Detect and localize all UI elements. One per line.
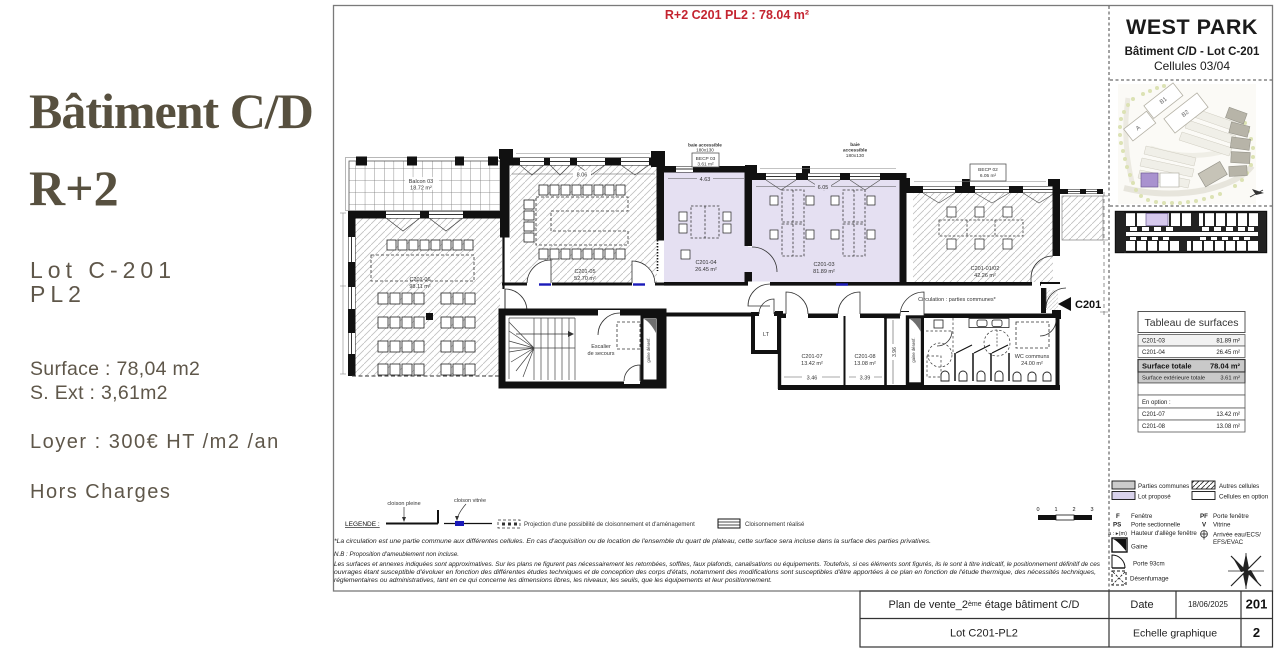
svg-text:Porte fenêtre: Porte fenêtre bbox=[1213, 513, 1249, 520]
svg-text:C201-04: C201-04 bbox=[695, 260, 716, 266]
svg-text:81.89 m²: 81.89 m² bbox=[813, 269, 835, 275]
svg-text:2: 2 bbox=[1253, 625, 1260, 640]
svg-text:F: F bbox=[1116, 513, 1120, 520]
svg-text:WC communs: WC communs bbox=[1015, 354, 1050, 360]
svg-text:accessible: accessible bbox=[843, 148, 868, 154]
svg-text:PF: PF bbox=[1200, 513, 1208, 520]
svg-text:C201-07: C201-07 bbox=[1142, 412, 1166, 418]
svg-text:13.08 m²: 13.08 m² bbox=[1216, 424, 1240, 430]
svg-text:Lot C201-PL2: Lot C201-PL2 bbox=[950, 628, 1018, 640]
svg-text:Cellules 03/04: Cellules 03/04 bbox=[1154, 59, 1230, 73]
svg-text:18.72 m²: 18.72 m² bbox=[410, 186, 432, 192]
svg-text:N.B : Proposition d'ameublemen: N.B : Proposition d'ameublement non incl… bbox=[334, 551, 459, 558]
svg-text:gaine désenf.: gaine désenf. bbox=[911, 337, 916, 362]
svg-text:180x130: 180x130 bbox=[696, 148, 714, 153]
svg-text:3.61 m²: 3.61 m² bbox=[1220, 376, 1240, 382]
svg-text:13.42 m²: 13.42 m² bbox=[1216, 412, 1240, 418]
svg-text:2: 2 bbox=[1072, 507, 1075, 513]
svg-text:Vitrine: Vitrine bbox=[1213, 522, 1231, 529]
svg-text:6.05 m²: 6.05 m² bbox=[980, 173, 997, 179]
svg-text:Parties communes: Parties communes bbox=[1138, 483, 1189, 490]
svg-text:Fenêtre: Fenêtre bbox=[1131, 513, 1153, 520]
svg-text:26.45 m²: 26.45 m² bbox=[1216, 350, 1240, 356]
svg-text:ouvrages étant susceptible d'é: ouvrages étant susceptible d'évoluer en … bbox=[334, 569, 1096, 576]
svg-text:cloison vitrée: cloison vitrée bbox=[454, 498, 486, 504]
svg-text:V: V bbox=[1202, 522, 1207, 529]
svg-text:BECP 02: BECP 02 bbox=[978, 167, 998, 173]
svg-text:18/06/2025: 18/06/2025 bbox=[1188, 600, 1229, 609]
svg-text:Gaine: Gaine bbox=[1131, 544, 1148, 551]
svg-text:BECP 03: BECP 03 bbox=[696, 156, 716, 162]
svg-text:Porte sectionnelle: Porte sectionnelle bbox=[1131, 522, 1181, 529]
svg-text:C201-06: C201-06 bbox=[409, 277, 430, 283]
svg-text:Porte 93cm: Porte 93cm bbox=[1133, 561, 1165, 568]
svg-text:Hauteur d'allège fenêtre: Hauteur d'allège fenêtre bbox=[1131, 530, 1197, 537]
svg-text:R+2 C201 PL2 : 78.04 m²: R+2 C201 PL2 : 78.04 m² bbox=[665, 8, 809, 22]
svg-text:Cloisonnement réalisé: Cloisonnement réalisé bbox=[745, 522, 805, 528]
svg-text:1: 1 bbox=[1054, 507, 1057, 513]
svg-text:En option :: En option : bbox=[1142, 400, 1171, 406]
svg-text:13.42 m²: 13.42 m² bbox=[801, 361, 823, 367]
svg-text:Date: Date bbox=[1130, 599, 1153, 611]
svg-text:EFS/EVAC: EFS/EVAC bbox=[1213, 539, 1244, 546]
svg-text:PS: PS bbox=[1113, 522, 1121, 529]
svg-text:*La circulation est une partie: *La circulation est une partie commune a… bbox=[334, 538, 931, 545]
svg-text:Autres cellules: Autres cellules bbox=[1219, 483, 1259, 490]
svg-text:6.05: 6.05 bbox=[818, 185, 829, 191]
svg-text:3: 3 bbox=[1090, 507, 1093, 513]
svg-text:8.06: 8.06 bbox=[577, 173, 588, 179]
svg-text:C201-03: C201-03 bbox=[1142, 339, 1166, 345]
svg-text:4.63: 4.63 bbox=[700, 177, 711, 183]
svg-text:98.11 m²: 98.11 m² bbox=[409, 284, 430, 290]
svg-text:C201-04: C201-04 bbox=[1142, 350, 1166, 356]
svg-text:13.08 m²: 13.08 m² bbox=[854, 361, 876, 367]
svg-text:C201-07: C201-07 bbox=[801, 354, 822, 360]
svg-text:201: 201 bbox=[1246, 597, 1268, 612]
svg-text:3.61 m²: 3.61 m² bbox=[697, 162, 714, 168]
svg-text:0: 0 bbox=[1036, 507, 1039, 513]
svg-text:C201: C201 bbox=[1075, 299, 1101, 311]
svg-text:C201-08: C201-08 bbox=[1142, 424, 1166, 430]
svg-text:Les surfaces et annexes indiqu: Les surfaces et annexes indiquées sont a… bbox=[334, 561, 1100, 568]
svg-text:réglementaires ou administrati: réglementaires ou administratives, tant … bbox=[334, 577, 772, 584]
svg-text:Circulation : parties communes: Circulation : parties communes* bbox=[918, 297, 997, 303]
svg-text:78.04 m²: 78.04 m² bbox=[1210, 362, 1241, 371]
svg-text:Tableau de surfaces: Tableau de surfaces bbox=[1145, 317, 1239, 329]
svg-text:81.89 m²: 81.89 m² bbox=[1216, 339, 1240, 345]
svg-text:Lot proposé: Lot proposé bbox=[1138, 494, 1171, 501]
svg-text:LEGENDE :: LEGENDE : bbox=[345, 521, 380, 528]
svg-text:26.45 m²: 26.45 m² bbox=[695, 267, 717, 273]
svg-text:gaine désenf.: gaine désenf. bbox=[646, 337, 651, 362]
svg-text:C201-03: C201-03 bbox=[813, 262, 834, 268]
svg-text:de secours: de secours bbox=[588, 351, 615, 357]
svg-text:Surface totale: Surface totale bbox=[1142, 362, 1192, 371]
svg-text:24.00 m²: 24.00 m² bbox=[1021, 361, 1043, 367]
svg-text:3.39: 3.39 bbox=[860, 376, 871, 382]
svg-text:Désenfumage: Désenfumage bbox=[1130, 576, 1169, 583]
svg-text:Surface extérieure totale: Surface extérieure totale bbox=[1142, 376, 1205, 382]
svg-text:Cellules en option: Cellules en option bbox=[1219, 494, 1269, 501]
svg-text:Echelle graphique: Echelle graphique bbox=[1133, 628, 1217, 640]
svg-text:180x130: 180x130 bbox=[846, 153, 865, 159]
svg-text:52.70 m²: 52.70 m² bbox=[574, 276, 596, 282]
svg-text:cloison pleine: cloison pleine bbox=[387, 501, 420, 507]
svg-text:baie: baie bbox=[850, 142, 860, 148]
svg-text:C201-01/02: C201-01/02 bbox=[971, 266, 1000, 272]
svg-text:42.26 m²: 42.26 m² bbox=[974, 273, 996, 279]
svg-text:Escalier: Escalier bbox=[591, 344, 611, 350]
svg-text:a : ▸(m): a : ▸(m) bbox=[1108, 531, 1127, 537]
svg-text:Bâtiment C/D - Lot C-201: Bâtiment C/D - Lot C-201 bbox=[1125, 46, 1260, 58]
svg-text:LT: LT bbox=[763, 332, 770, 338]
svg-text:3.46: 3.46 bbox=[807, 376, 818, 382]
svg-text:WEST PARK: WEST PARK bbox=[1126, 15, 1258, 39]
svg-text:Balcon 03: Balcon 03 bbox=[409, 179, 433, 185]
svg-text:Arrivée eau/ECS/: Arrivée eau/ECS/ bbox=[1213, 532, 1261, 539]
svg-text:Projection d'une possibilité d: Projection d'une possibilité de cloisonn… bbox=[524, 522, 695, 528]
svg-text:Plan de vente_2ème étage bâtim: Plan de vente_2ème étage bâtiment C/D bbox=[889, 599, 1080, 611]
svg-text:C201-08: C201-08 bbox=[854, 354, 875, 360]
svg-text:C201-05: C201-05 bbox=[574, 269, 595, 275]
svg-text:3.96: 3.96 bbox=[892, 347, 898, 357]
